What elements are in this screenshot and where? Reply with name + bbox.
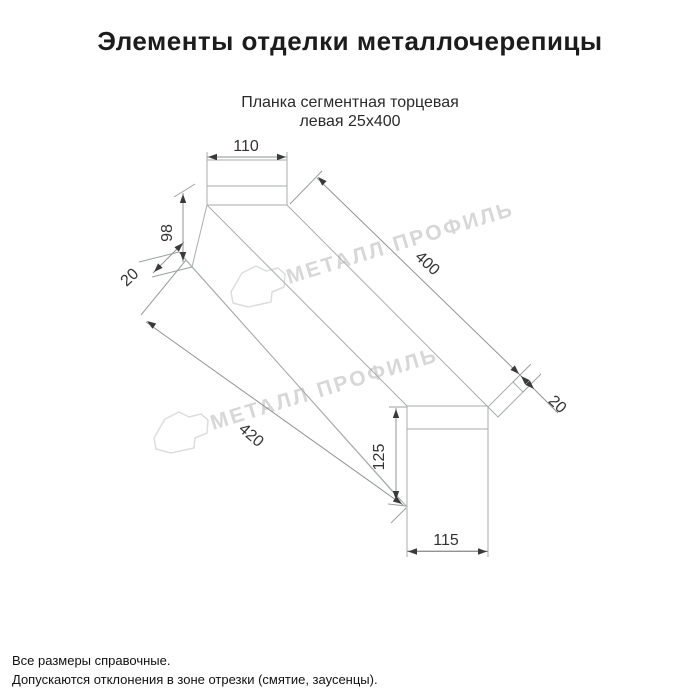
- ext-420-lower: [391, 508, 406, 523]
- arrow-110-left: [208, 154, 217, 160]
- strip-top-left-edge: [207, 205, 407, 406]
- watermark-text: МЕТАЛЛ ПРОФИЛЬ: [284, 198, 517, 289]
- arrow-98-top: [180, 194, 186, 203]
- watermark-group-2: МЕТАЛЛ ПРОФИЛЬ: [154, 344, 441, 453]
- dim-label-110: 110: [233, 138, 259, 155]
- drawing-page: Элементы отделки металлочерепицы Планка …: [0, 0, 700, 700]
- dim-label-20-left: 20: [118, 265, 143, 290]
- dim-label-20-right: 20: [545, 392, 570, 417]
- watermark-text: МЕТАЛЛ ПРОФИЛЬ: [208, 344, 441, 435]
- arrow-115-left: [408, 548, 417, 554]
- footer-notes: Все размеры справочные. Допускаются откл…: [12, 651, 672, 689]
- watermark-logo-icon: [154, 412, 208, 453]
- arrow-420-upper: [145, 318, 156, 328]
- dim-label-115: 115: [433, 532, 459, 549]
- ext-420-upper: [141, 260, 186, 315]
- watermark-logo-icon: [231, 266, 285, 307]
- dim-line-420: [146, 322, 403, 505]
- right-end-cap-flange: [488, 382, 523, 417]
- left-end-flange-face: [207, 152, 287, 205]
- footer-note-1: Все размеры справочные.: [12, 651, 672, 670]
- ext-400-upper: [290, 171, 322, 204]
- watermark-group-1: МЕТАЛЛ ПРОФИЛЬ: [231, 198, 517, 307]
- ext-98-top: [174, 184, 195, 197]
- arrow-125-top: [393, 409, 399, 418]
- ext-20-right-a: [513, 364, 531, 382]
- footer-note-2: Допускаются отклонения в зоне отрезки (с…: [12, 670, 672, 689]
- technical-drawing: МЕТАЛЛ ПРОФИЛЬ МЕТАЛЛ ПРОФИЛЬ: [0, 0, 700, 700]
- arrow-110-right: [277, 154, 286, 160]
- dim-label-125: 125: [371, 444, 388, 471]
- ext-125-bottom: [388, 504, 406, 506]
- dim-label-98: 98: [159, 224, 176, 242]
- arrow-115-right: [478, 548, 487, 554]
